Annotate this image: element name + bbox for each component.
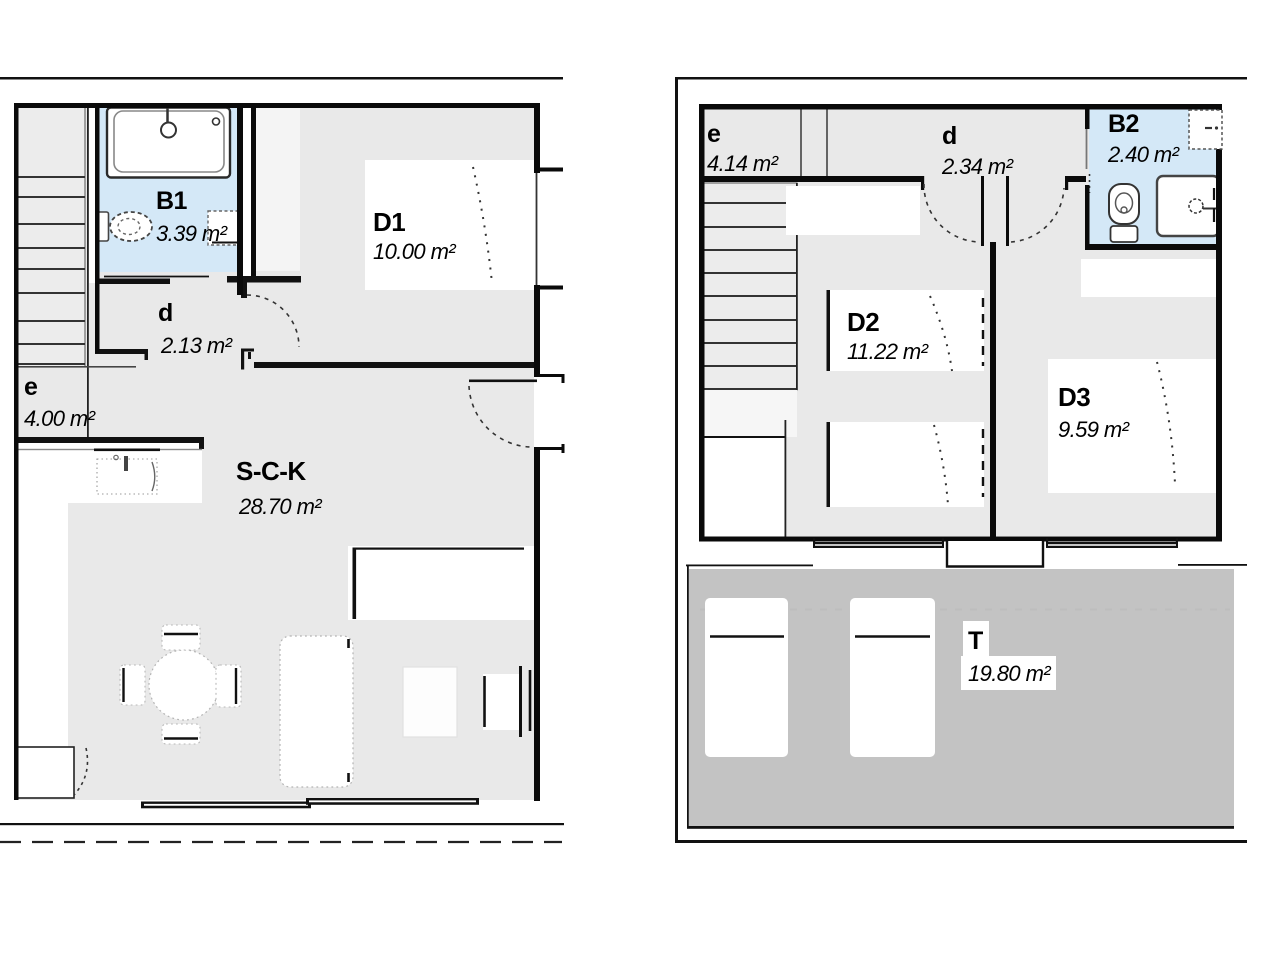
svg-text:B2: B2 — [1108, 110, 1139, 138]
svg-text:4.14 m²: 4.14 m² — [707, 151, 779, 176]
svg-text:4.00 m²: 4.00 m² — [24, 406, 96, 431]
svg-text:e: e — [24, 373, 38, 401]
svg-text:T: T — [968, 627, 983, 655]
svg-text:9.59 m²: 9.59 m² — [1058, 417, 1130, 442]
svg-text:d: d — [158, 299, 173, 327]
svg-text:S-C-K: S-C-K — [236, 456, 306, 486]
svg-text:10.00 m²: 10.00 m² — [373, 239, 456, 264]
svg-text:28.70 m²: 28.70 m² — [238, 494, 322, 519]
svg-text:11.22 m²: 11.22 m² — [847, 339, 929, 364]
svg-text:d: d — [942, 122, 957, 150]
svg-text:2.40 m²: 2.40 m² — [1107, 142, 1180, 167]
svg-text:2.13 m²: 2.13 m² — [160, 333, 233, 358]
svg-text:B1: B1 — [156, 187, 188, 215]
svg-text:D3: D3 — [1058, 382, 1090, 412]
svg-text:3.39 m²: 3.39 m² — [156, 221, 228, 246]
svg-text:D2: D2 — [847, 307, 879, 337]
svg-text:19.80 m²: 19.80 m² — [968, 661, 1051, 686]
svg-text:e: e — [707, 120, 721, 148]
svg-text:2.34 m²: 2.34 m² — [941, 154, 1014, 179]
svg-text:D1: D1 — [373, 207, 405, 237]
